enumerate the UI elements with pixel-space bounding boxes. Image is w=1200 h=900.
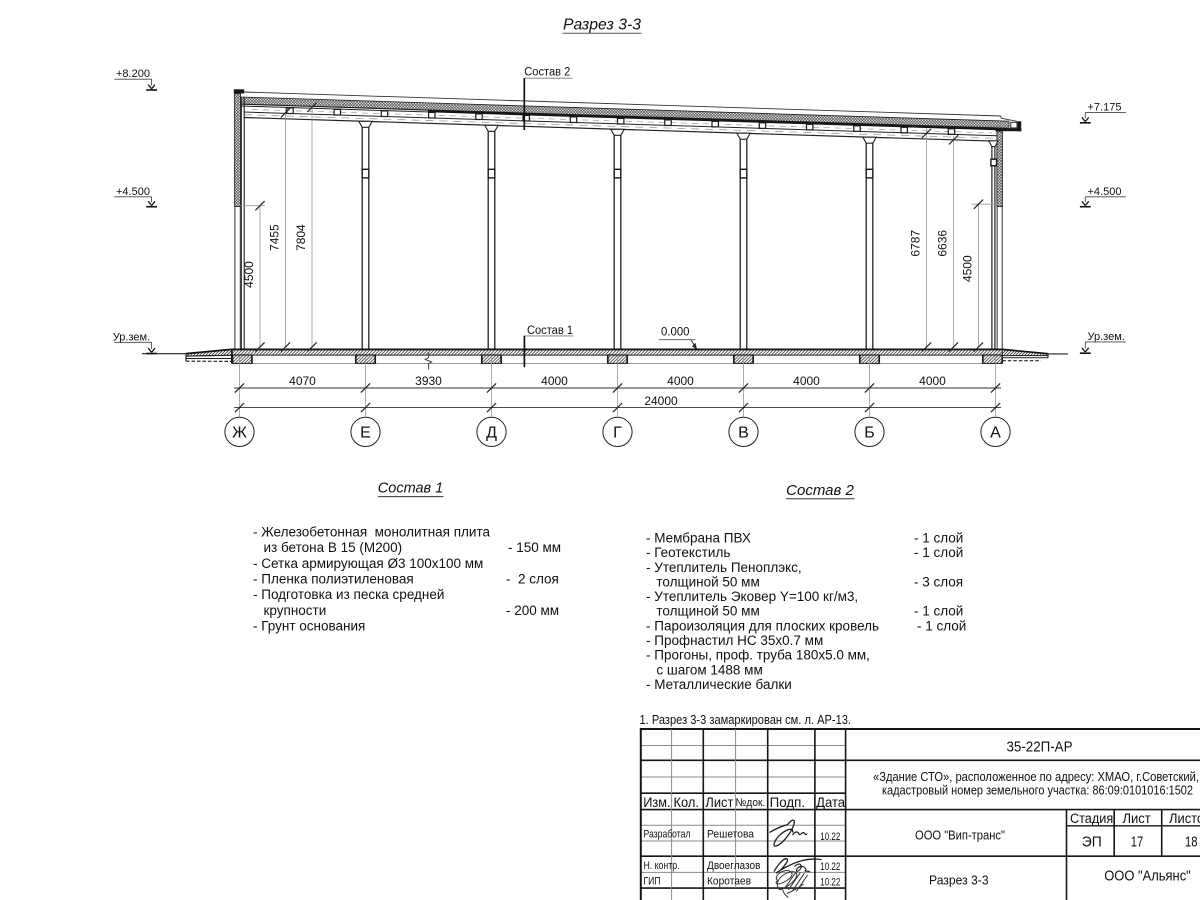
svg-text:Изм.: Изм. [643,794,670,810]
svg-text:Коротаев: Коротаев [707,876,751,888]
svg-text:кадастровый номер земельного у: кадастровый номер земельного участка: 86… [882,783,1193,798]
svg-text:7455: 7455 [267,224,281,251]
svg-text:Д: Д [486,424,497,441]
svg-text:10.22: 10.22 [820,861,840,873]
svg-text:10.22: 10.22 [820,831,840,843]
svg-text:- Пароизоляция для плоских кро: - Пароизоляция для плоских кровель [646,618,879,633]
svg-text:3930: 3930 [415,374,442,388]
svg-text:Состав 1: Состав 1 [378,481,443,497]
svg-text:Г: Г [613,424,622,441]
svg-text:Лист: Лист [1122,811,1150,826]
svg-text:Ур.зем.: Ур.зем. [113,331,150,343]
svg-text:Разрез 3-3: Разрез 3-3 [929,873,989,888]
svg-text:- Мембрана ПВХ: - Мембрана ПВХ [646,531,751,546]
svg-text:4000: 4000 [667,374,694,388]
svg-text:4000: 4000 [541,374,568,388]
svg-text:- Подготовка из песка средней: - Подготовка из песка средней [253,587,444,602]
svg-text:Двоеглазов: Двоеглазов [707,860,761,872]
svg-text:Стадия: Стадия [1070,811,1113,826]
svg-text:10.22: 10.22 [820,877,840,889]
svg-text:№док.: №док. [736,797,766,809]
svg-text:35-22П-АР: 35-22П-АР [1007,738,1073,755]
svg-text:Состав 1: Состав 1 [527,325,573,337]
svg-text:В: В [738,424,749,441]
svg-text:17: 17 [1131,833,1144,850]
svg-text:+4.500: +4.500 [1088,186,1122,198]
svg-text:+7.175: +7.175 [1088,101,1122,113]
svg-text:- Прогоны, проф. труба 180х5.0: - Прогоны, проф. труба 180х5.0 мм, [646,648,870,663]
svg-text:- 150 мм: - 150 мм [508,540,561,555]
svg-text:- Грунт основания: - Грунт основания [253,619,365,634]
svg-text:- 200 мм: - 200 мм [506,603,559,618]
svg-text:- Профнастил НС 35х0.7 мм: - Профнастил НС 35х0.7 мм [646,633,823,648]
svg-text:ООО "Альянс": ООО "Альянс" [1104,869,1191,885]
svg-text:Б: Б [864,424,875,441]
svg-text:- Геотекстиль: - Геотекстиль [646,545,730,560]
svg-text:из бетона В 15 (М200): из бетона В 15 (М200) [264,540,403,555]
svg-text:- Утеплитель Эковер Y=100 кг/м: - Утеплитель Эковер Y=100 кг/м3, [646,589,858,604]
svg-text:Состав 2: Состав 2 [786,482,854,499]
svg-text:толщиной 50 мм: толщиной 50 мм [656,604,759,619]
svg-text:Решетова: Решетова [707,828,755,840]
svg-text:- Железобетонная монолитная п: - Железобетонная монолитная плита [253,525,490,540]
svg-text:Разработал: Разработал [644,829,691,841]
svg-text:0.000: 0.000 [661,327,690,339]
svg-text:- Сетка армирующая Ø3 100х100: - Сетка армирующая Ø3 100х100 мм [253,556,483,571]
svg-text:4000: 4000 [793,374,820,388]
svg-text:А: А [990,424,1001,441]
svg-text:Разрез 3-3: Разрез 3-3 [563,17,641,34]
svg-text:ЭП: ЭП [1082,833,1102,850]
svg-text:Ур.зем.: Ур.зем. [1088,331,1125,343]
svg-text:1. Разрез 3-3 замаркирован см.: 1. Разрез 3-3 замаркирован см. л. АР-13. [640,713,852,727]
svg-text:- 1 слой: - 1 слой [914,545,963,560]
svg-text:толщиной 50 мм: толщиной 50 мм [656,574,759,589]
svg-text:18: 18 [1185,833,1198,850]
svg-text:4000: 4000 [919,374,946,388]
svg-text:Н. контр.: Н. контр. [644,860,680,872]
svg-text:6636: 6636 [936,230,950,257]
svg-text:7804: 7804 [294,224,308,251]
svg-text:6787: 6787 [909,230,923,257]
svg-text:- 1 слой: - 1 слой [914,531,963,546]
svg-text:+4.500: +4.500 [116,186,150,198]
svg-text:24000: 24000 [644,394,678,408]
svg-text:+8.200: +8.200 [116,68,150,80]
svg-text:ГИП: ГИП [644,876,661,888]
svg-text:4070: 4070 [289,374,316,388]
svg-text:- Утеплитель Пеноплэкс,: - Утеплитель Пеноплэкс, [646,560,802,575]
svg-text:Ж: Ж [232,424,247,441]
svg-text:4500: 4500 [961,255,975,282]
svg-text:Е: Е [360,424,371,441]
svg-text:4500: 4500 [242,261,256,288]
svg-text:Состав 2: Состав 2 [524,66,570,78]
svg-text:Лист: Лист [705,794,734,810]
svg-text:- 1 слой: - 1 слой [914,604,963,619]
svg-text:Подп.: Подп. [770,794,806,810]
svg-text:- Металлические балки: - Металлические балки [646,677,792,692]
svg-text:Дата: Дата [816,794,845,810]
svg-text:- 1 слой: - 1 слой [917,618,966,633]
svg-text:Листов: Листов [1169,811,1200,826]
svg-text:с шагом 1488 мм: с шагом 1488 мм [656,662,762,677]
svg-text:Кол.: Кол. [674,794,699,810]
svg-text:- 3 слоя: - 3 слоя [914,574,963,589]
svg-text:крупности: крупности [264,603,327,618]
svg-text:ООО "Вип-транс": ООО "Вип-транс" [915,827,1005,842]
svg-text:- Пленка полиэтиленовая: - Пленка полиэтиленовая [253,572,414,587]
svg-text:- 2 слоя: - 2 слоя [506,572,559,587]
